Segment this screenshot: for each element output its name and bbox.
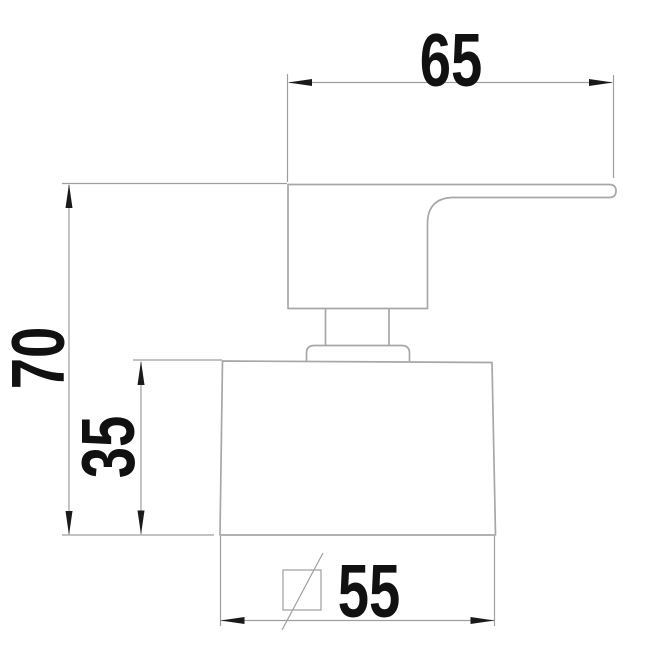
dim-label-65: 65 [420, 19, 483, 103]
arrow-65-left [288, 79, 312, 86]
arrow-70-bottom [66, 511, 73, 535]
collar-outline [307, 346, 410, 362]
arrow-65-right [589, 79, 613, 86]
arrow-55-right [471, 617, 495, 624]
arrow-70-top [66, 184, 73, 208]
arrow-35-top [138, 361, 145, 385]
square-symbol-slash [282, 553, 323, 630]
handle-lever-outline [288, 185, 616, 309]
square-symbol-box [283, 570, 321, 610]
part-geometry [220, 185, 616, 536]
arrow-35-bottom [138, 511, 145, 535]
dimension-lines [62, 74, 614, 630]
dim-label-35: 35 [67, 416, 151, 479]
base-outline [220, 361, 496, 535]
dim-label-55: 55 [338, 550, 401, 634]
dimension-arrows [66, 79, 614, 624]
arrow-55-left [221, 617, 245, 624]
dimension-labels: 65 70 35 55 [0, 19, 482, 634]
dim-label-70: 70 [0, 327, 81, 390]
drawing-svg: 65 70 35 55 [0, 0, 650, 650]
technical-drawing-canvas: 65 70 35 55 [0, 0, 650, 650]
